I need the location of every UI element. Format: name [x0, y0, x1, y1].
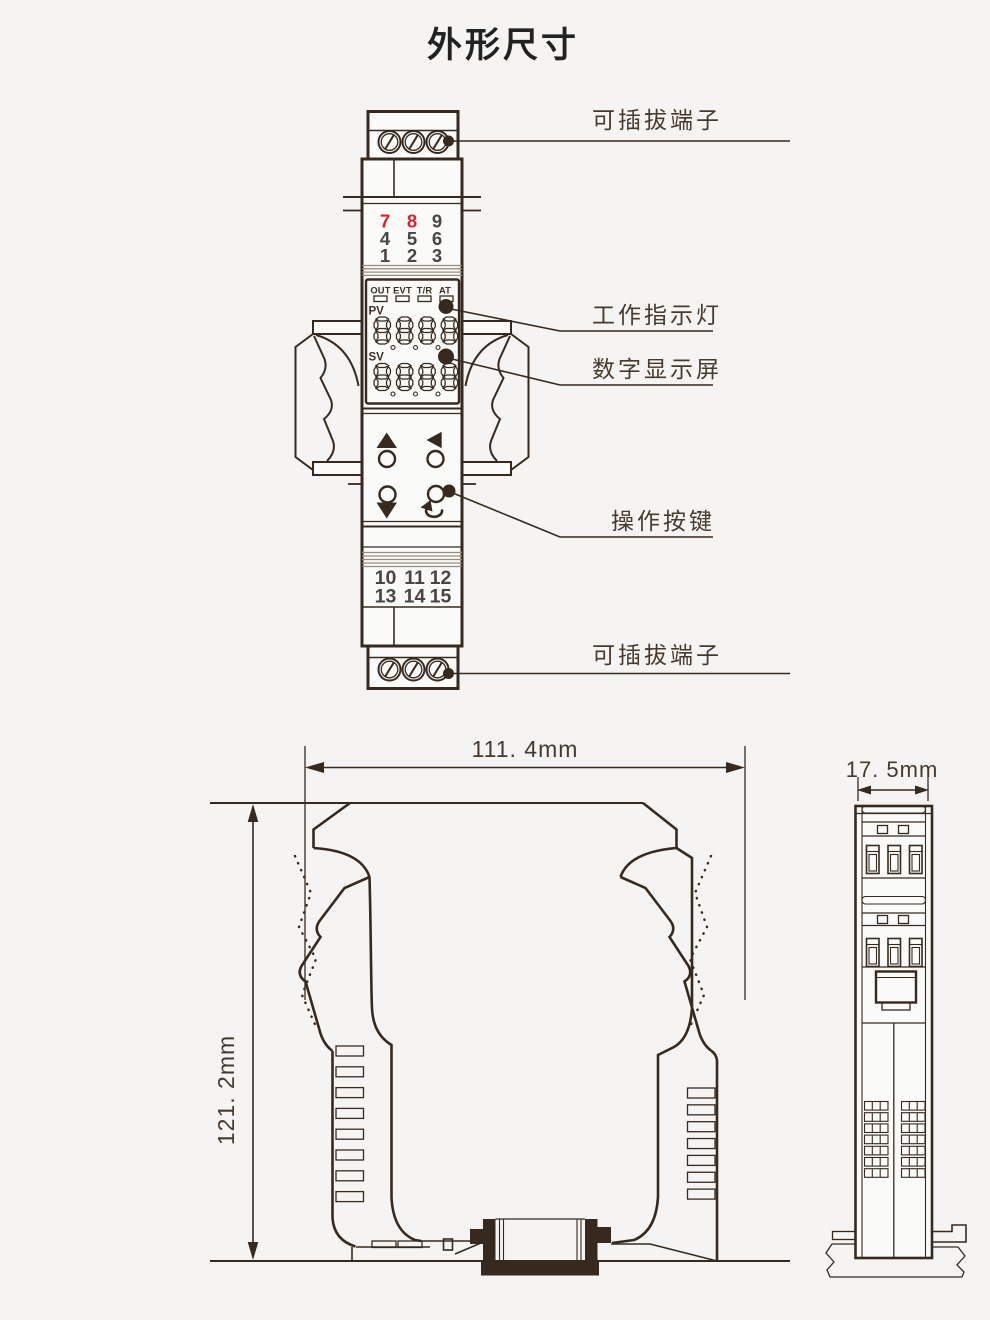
callouts: 可插拔端子 工作指示灯 数字显示屏 操作按键 可插拔端子	[451, 107, 790, 674]
terminal-number: 1	[380, 245, 390, 266]
drawing-canvas: 外形尺寸	[0, 0, 990, 1320]
indicator-leader-dot	[439, 299, 454, 314]
indicator-label-tr: T/R	[417, 286, 433, 296]
drawing-line	[314, 803, 351, 848]
vent-slot	[336, 1108, 364, 1118]
drawing-line	[314, 336, 334, 461]
vent-slot	[688, 1088, 716, 1098]
vent-slot	[336, 1046, 364, 1056]
drawing-line	[462, 321, 511, 334]
drawing-line	[370, 877, 422, 1241]
din-latch-tab	[932, 1225, 966, 1242]
arrowhead-left	[305, 762, 324, 773]
front-view: 7 8 9 4 5 6 1 2 3 OUT EVT T/R AT	[296, 107, 791, 689]
vent-slots-left	[336, 1046, 364, 1202]
pv-label: PV	[369, 306, 385, 318]
vent-slot	[688, 1105, 716, 1115]
depth-dimension-label: 17. 5mm	[846, 757, 939, 782]
vent-slot	[336, 1067, 364, 1077]
drawing-line	[333, 1051, 356, 1247]
drawing-line	[313, 321, 362, 334]
din-rail-wing-right	[462, 321, 529, 475]
clamp-left-tab	[470, 1229, 483, 1244]
bottom-terminal-block	[368, 646, 458, 689]
indicator-label-out: OUT	[370, 286, 390, 296]
depth-dimension: 17. 5mm	[846, 757, 939, 801]
drawing-line	[511, 334, 529, 470]
terminal-number: 2	[407, 245, 417, 266]
vent-slot	[688, 1189, 716, 1199]
dotted-claw-travel-line	[295, 856, 317, 1029]
clamp-base	[481, 1261, 599, 1276]
drawing-line	[957, 1247, 965, 1277]
drawing-line	[621, 848, 677, 877]
callout-top-terminal: 可插拔端子	[592, 107, 722, 133]
callout-operation-buttons: 操作按键	[611, 508, 715, 534]
drawing-line	[462, 462, 511, 475]
top-terminal-block	[368, 112, 458, 160]
leader-dot	[443, 136, 454, 147]
drawing-line	[455, 1243, 481, 1254]
arrowhead-left	[857, 786, 871, 795]
vent-slot	[688, 1139, 716, 1149]
profile-left-side	[295, 803, 421, 1247]
height-dimension-label: 121. 2mm	[213, 1035, 239, 1145]
callout-bottom-terminal: 可插拔端子	[592, 642, 722, 668]
terminal-number: 3	[432, 245, 442, 266]
height-dimension: 121. 2mm	[213, 804, 258, 1260]
callout-indicator-light: 工作指示灯	[592, 302, 722, 328]
drawing-line	[826, 1244, 834, 1277]
width-dimension-label: 111. 4mm	[472, 736, 579, 762]
drawing-line	[612, 848, 692, 1243]
vent-slot	[336, 1150, 364, 1160]
dimension-drawing-page: 外形尺寸	[0, 0, 990, 1320]
arrowhead-right	[915, 786, 929, 795]
arrowhead-down	[248, 1242, 259, 1260]
vent-slot	[688, 1172, 716, 1182]
drawing-line	[490, 336, 510, 461]
drawing-line	[296, 334, 314, 470]
terminal-numbers-bottom: 10 11 12 13 14 15	[375, 567, 452, 608]
arrowhead-up	[248, 804, 259, 822]
drawing-line	[316, 335, 359, 386]
drawing-line	[466, 335, 509, 386]
vent-slot	[336, 1129, 364, 1139]
drawing-line	[313, 462, 362, 475]
arrowhead-right	[726, 762, 745, 773]
terminal-numbers-top: 7 8 9 4 5 6 1 2 3	[380, 211, 442, 267]
callout-digital-display: 数字显示屏	[592, 356, 722, 382]
drawing-line	[650, 1244, 717, 1261]
terminal-number: 13	[375, 586, 397, 608]
drawing-line	[643, 803, 677, 848]
page-title: 外形尺寸	[427, 26, 579, 65]
display-leader-dot	[438, 349, 454, 365]
terminal-number: 15	[430, 586, 452, 608]
vent-slot	[688, 1155, 716, 1165]
din-rail-wing-left	[296, 321, 363, 475]
drawing-line	[314, 848, 370, 877]
indicator-label-at: AT	[439, 286, 451, 296]
buttons-leader-dot	[443, 485, 456, 498]
rail-edge-stub	[833, 1232, 856, 1240]
side-profile-view: 111. 4mm 121. 2mm	[210, 736, 790, 1276]
terminal-screws-bottom	[379, 659, 449, 681]
drawing-line	[621, 877, 712, 1051]
leader-dot	[443, 668, 454, 679]
clamp-right-jaw	[585, 1219, 598, 1262]
indicator-label-evt: EVT	[393, 286, 412, 296]
din-clamp-assembly	[352, 1219, 717, 1276]
vent-slot	[336, 1171, 364, 1181]
clamp-left-jaw	[483, 1219, 496, 1262]
vent-slot	[336, 1088, 364, 1098]
terminal-screws-top	[379, 131, 449, 153]
profile-right-side	[612, 803, 717, 1261]
vent-slot	[336, 1192, 364, 1202]
vent-slots-right	[688, 1088, 716, 1199]
clamp-right-tab	[598, 1227, 612, 1243]
sv-label: SV	[369, 352, 385, 364]
drawing-line	[300, 877, 370, 1051]
terminal-number: 14	[404, 586, 426, 608]
vent-slot	[688, 1122, 716, 1132]
end-view: 17. 5mm	[826, 757, 966, 1277]
digital-display-panel: OUT EVT T/R AT PV SV	[366, 280, 459, 404]
